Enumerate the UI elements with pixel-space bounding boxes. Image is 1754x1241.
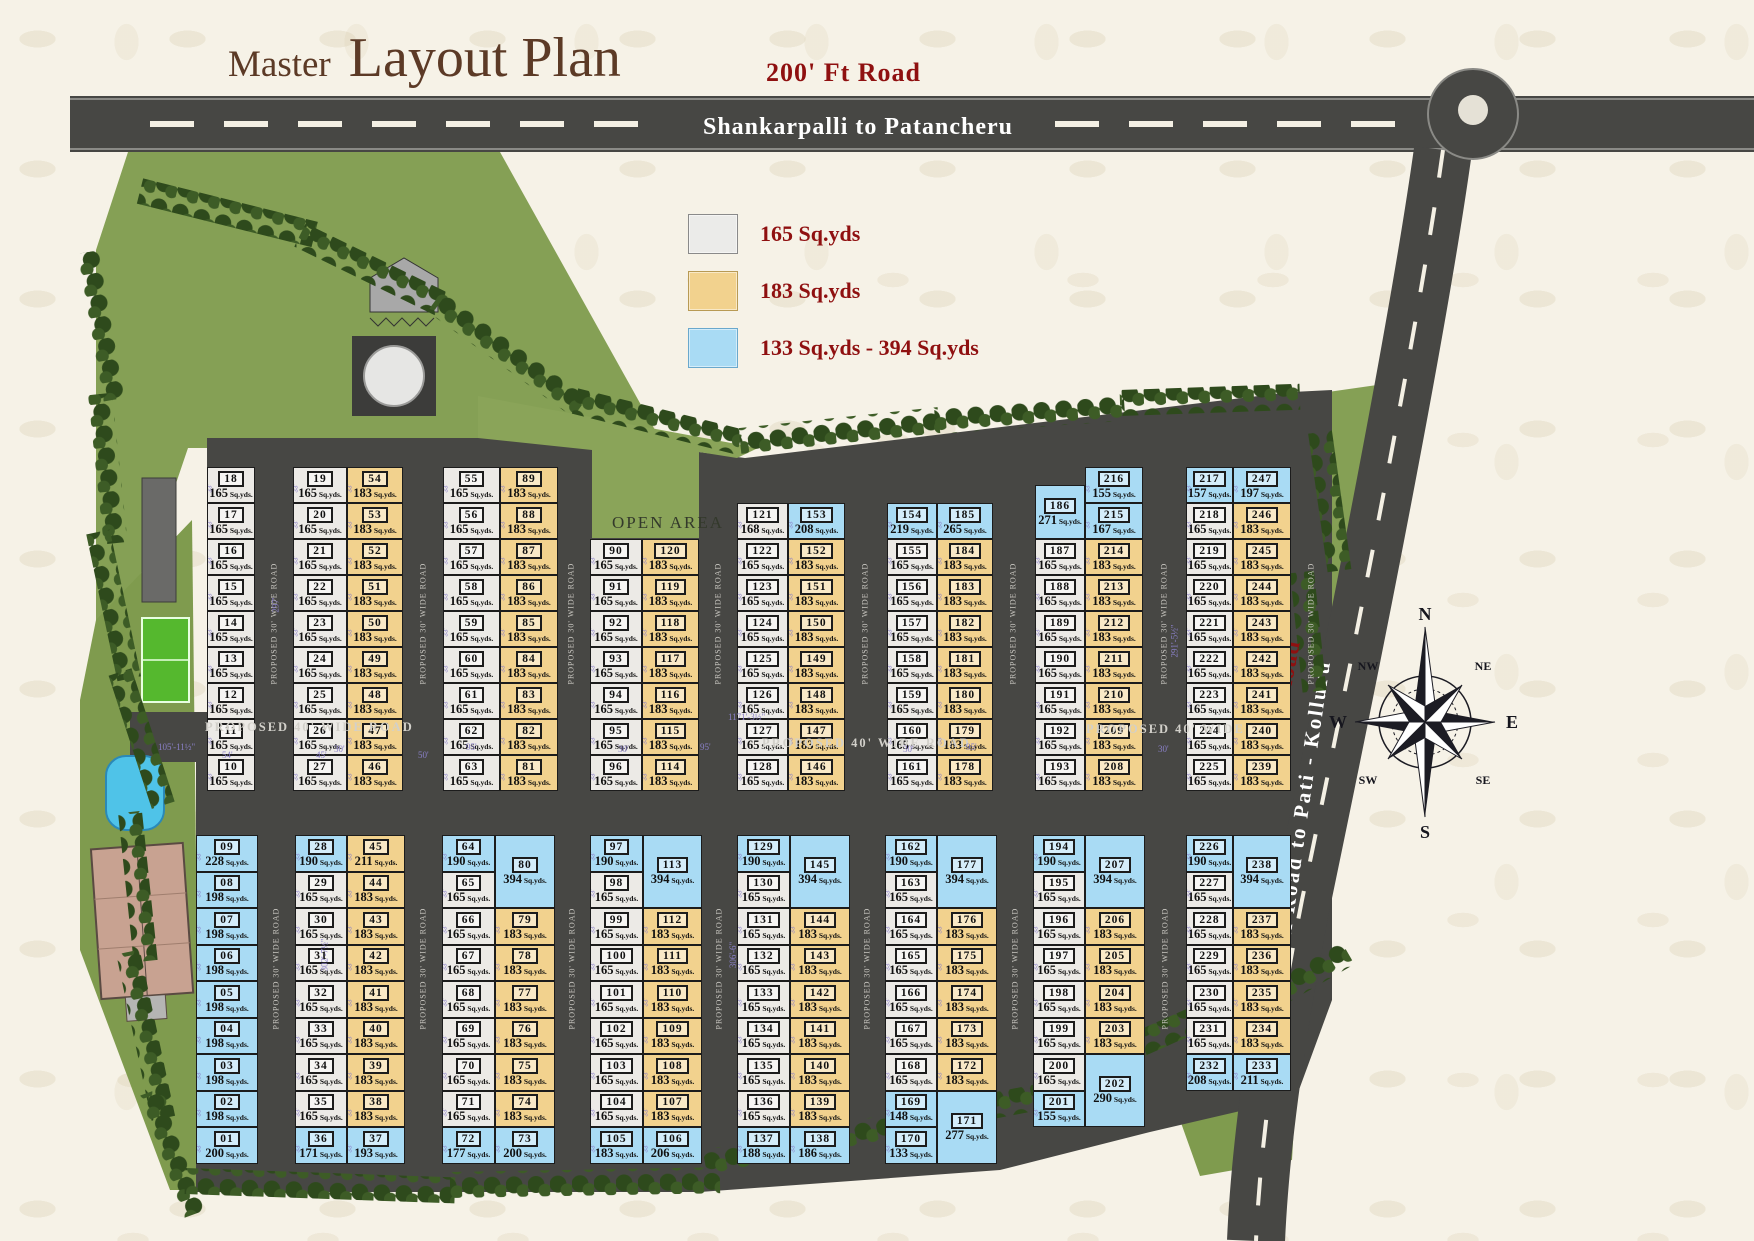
plot-82[interactable]: 82183 Sq.yds.33': [500, 719, 558, 755]
plot-number: 180: [949, 687, 981, 703]
plot-number: 94: [603, 687, 629, 703]
plot-108[interactable]: 108183 Sq.yds.33': [643, 1054, 702, 1091]
plot-28[interactable]: 28190 Sq.yds.33': [295, 835, 347, 872]
plot-depth-dim: 33': [295, 1035, 302, 1043]
plot-98[interactable]: 98165 Sq.yds.33': [590, 872, 643, 909]
plot-09[interactable]: 09228 Sq.yds.33': [196, 835, 258, 872]
plot-13[interactable]: 13165 Sq.yds.33': [207, 647, 255, 683]
plot-93[interactable]: 93165 Sq.yds.33': [590, 647, 642, 683]
plot-180[interactable]: 180183 Sq.yds.33': [937, 683, 993, 719]
plot-depth-dim: 33': [1233, 962, 1240, 970]
plot-44[interactable]: 44183 Sq.yds.33': [347, 872, 405, 909]
plot-130[interactable]: 130165 Sq.yds.33': [737, 872, 790, 909]
plot-size: 183 Sq.yds.: [651, 965, 695, 977]
plot-124[interactable]: 124165 Sq.yds.33': [737, 611, 788, 647]
plot-149[interactable]: 149183 Sq.yds.33': [788, 647, 845, 683]
plot-91[interactable]: 91165 Sq.yds.33': [590, 575, 642, 611]
plot-143[interactable]: 143183 Sq.yds.33': [790, 945, 850, 982]
plot-247[interactable]: 247197 Sq.yds.33': [1233, 467, 1291, 503]
plot-232[interactable]: 232208 Sq.yds.33': [1186, 1054, 1233, 1091]
plot-210[interactable]: 210183 Sq.yds.33': [1085, 683, 1143, 719]
plot-123[interactable]: 123165 Sq.yds.33': [737, 575, 788, 611]
plot-191[interactable]: 191165 Sq.yds.33': [1035, 683, 1085, 719]
plot-113[interactable]: 113394 Sq.yds.: [643, 835, 702, 908]
plot-22[interactable]: 22165 Sq.yds.33': [293, 575, 347, 611]
plot-33[interactable]: 33165 Sq.yds.33': [295, 1018, 347, 1055]
plot-136[interactable]: 136165 Sq.yds.33': [737, 1091, 790, 1128]
plot-06[interactable]: 06198 Sq.yds.33': [196, 945, 258, 982]
plot-171[interactable]: 171277 Sq.yds.: [937, 1091, 997, 1164]
plot-140[interactable]: 140183 Sq.yds.33': [790, 1054, 850, 1091]
plot-50[interactable]: 50183 Sq.yds.33': [347, 611, 403, 647]
plot-216[interactable]: 216155 Sq.yds.33': [1085, 467, 1143, 503]
plot-77[interactable]: 77183 Sq.yds.33': [495, 981, 555, 1018]
plot-114[interactable]: 114183 Sq.yds.33': [642, 755, 699, 791]
plot-depth-dim: 33': [737, 889, 744, 897]
plot-size: 183 Sq.yds.: [945, 1075, 989, 1087]
plot-32[interactable]: 32165 Sq.yds.33': [295, 981, 347, 1018]
plot-214[interactable]: 214183 Sq.yds.33': [1085, 539, 1143, 575]
plot-number: 217: [1193, 471, 1225, 487]
plot-depth-dim: 33': [1186, 1072, 1193, 1080]
plot-165[interactable]: 165165 Sq.yds.33': [885, 945, 937, 982]
plot-84[interactable]: 84183 Sq.yds.33': [500, 647, 558, 683]
plot-131[interactable]: 131165 Sq.yds.33': [737, 908, 790, 945]
plot-157[interactable]: 157165 Sq.yds.33': [887, 611, 937, 647]
plot-42[interactable]: 42183 Sq.yds.33': [347, 945, 405, 982]
plot-10[interactable]: 10165 Sq.yds.33': [207, 755, 255, 791]
plot-07[interactable]: 07198 Sq.yds.33': [196, 908, 258, 945]
plot-101[interactable]: 101165 Sq.yds.33': [590, 981, 643, 1018]
plot-65[interactable]: 65165 Sq.yds.33': [442, 872, 495, 909]
plot-174[interactable]: 174183 Sq.yds.33': [937, 981, 997, 1018]
plot-95[interactable]: 95165 Sq.yds.33': [590, 719, 642, 755]
plot-17[interactable]: 17165 Sq.yds.33': [207, 503, 255, 539]
plot-142[interactable]: 142183 Sq.yds.33': [790, 981, 850, 1018]
plot-244[interactable]: 244183 Sq.yds.33': [1233, 575, 1291, 611]
plot-146[interactable]: 146183 Sq.yds.33': [788, 755, 845, 791]
plot-230[interactable]: 230165 Sq.yds.33': [1186, 981, 1233, 1018]
plot-188[interactable]: 188165 Sq.yds.33': [1035, 575, 1085, 611]
plot-176[interactable]: 176183 Sq.yds.33': [937, 908, 997, 945]
plot-37[interactable]: 37193 Sq.yds.33': [347, 1127, 405, 1164]
plot-number: 14: [218, 615, 244, 631]
plot-depth-dim: 33': [442, 853, 449, 861]
plot-229[interactable]: 229165 Sq.yds.33': [1186, 945, 1233, 982]
plot-size: 183 Sq.yds.: [649, 776, 693, 788]
plot-number: 215: [1098, 507, 1130, 523]
plot-number: 90: [603, 543, 629, 559]
plot-211[interactable]: 211183 Sq.yds.33': [1085, 647, 1143, 683]
plot-size: 183 Sq.yds.: [651, 1002, 695, 1014]
plot-189[interactable]: 189165 Sq.yds.33': [1035, 611, 1085, 647]
plot-number: 187: [1044, 543, 1076, 559]
plot-02[interactable]: 02198 Sq.yds.33': [196, 1091, 258, 1128]
plot-182[interactable]: 182183 Sq.yds.33': [937, 611, 993, 647]
plot-106[interactable]: 106206 Sq.yds.33': [643, 1127, 702, 1164]
plot-99[interactable]: 99165 Sq.yds.33': [590, 908, 643, 945]
plot-15[interactable]: 15165 Sq.yds.33': [207, 575, 255, 611]
plot-170[interactable]: 170133 Sq.yds.33': [885, 1127, 937, 1164]
plot-185[interactable]: 185265 Sq.yds.33': [937, 503, 993, 539]
plot-118[interactable]: 118183 Sq.yds.33': [642, 611, 699, 647]
plot-177[interactable]: 177394 Sq.yds.: [937, 835, 997, 908]
plot-194[interactable]: 194190 Sq.yds.33': [1033, 835, 1085, 872]
plot-number: 38: [363, 1094, 389, 1110]
plot-number: 46: [362, 759, 388, 775]
plot-40[interactable]: 40183 Sq.yds.33': [347, 1018, 405, 1055]
plot-size: 183 Sq.yds.: [503, 1002, 547, 1014]
plot-49[interactable]: 49183 Sq.yds.33': [347, 647, 403, 683]
plot-135[interactable]: 135165 Sq.yds.33': [737, 1054, 790, 1091]
plot-212[interactable]: 212183 Sq.yds.33': [1085, 611, 1143, 647]
plot-60[interactable]: 60165 Sq.yds.33': [443, 647, 500, 683]
plot-204[interactable]: 204183 Sq.yds.33': [1085, 981, 1145, 1018]
plot-67[interactable]: 67165 Sq.yds.33': [442, 945, 495, 982]
plot-128[interactable]: 128165 Sq.yds.33': [737, 755, 788, 791]
plot-122[interactable]: 122165 Sq.yds.33': [737, 539, 788, 575]
plot-154[interactable]: 154219 Sq.yds.33': [887, 503, 937, 539]
plot-number: 197: [1043, 948, 1075, 964]
plot-59[interactable]: 59165 Sq.yds.33': [443, 611, 500, 647]
plot-109[interactable]: 109183 Sq.yds.33': [643, 1018, 702, 1055]
plot-43[interactable]: 43183 Sq.yds.33': [347, 908, 405, 945]
plot-187[interactable]: 187165 Sq.yds.33': [1035, 539, 1085, 575]
plot-241[interactable]: 241183 Sq.yds.33': [1233, 683, 1291, 719]
plot-29[interactable]: 29165 Sq.yds.33': [295, 872, 347, 909]
plot-45[interactable]: 45211 Sq.yds.33': [347, 835, 405, 872]
plot-163[interactable]: 163165 Sq.yds.33': [885, 872, 937, 909]
plot-175[interactable]: 175183 Sq.yds.33': [937, 945, 997, 982]
plot-132[interactable]: 132165 Sq.yds.33': [737, 945, 790, 982]
plot-116[interactable]: 116183 Sq.yds.33': [642, 683, 699, 719]
plot-192[interactable]: 192165 Sq.yds.33': [1035, 719, 1085, 755]
plot-58[interactable]: 58165 Sq.yds.33': [443, 575, 500, 611]
plot-number: 125: [746, 651, 778, 667]
plot-size: 183 Sq.yds.: [503, 965, 547, 977]
plot-number: 168: [895, 1058, 927, 1074]
plot-198[interactable]: 198165 Sq.yds.33': [1033, 981, 1085, 1018]
plot-206[interactable]: 206183 Sq.yds.33': [1085, 908, 1145, 945]
plot-107[interactable]: 107183 Sq.yds.33': [643, 1091, 702, 1128]
plot-161[interactable]: 161165 Sq.yds.33': [887, 755, 937, 791]
plot-92[interactable]: 92165 Sq.yds.33': [590, 611, 642, 647]
plot-87[interactable]: 87183 Sq.yds.33': [500, 539, 558, 575]
plot-96[interactable]: 96165 Sq.yds.33': [590, 755, 642, 791]
plot-depth-dim: 33': [887, 556, 894, 564]
plot-41[interactable]: 41183 Sq.yds.33': [347, 981, 405, 1018]
plot-20[interactable]: 20165 Sq.yds.33': [293, 503, 347, 539]
plot-51[interactable]: 51183 Sq.yds.33': [347, 575, 403, 611]
plot-228[interactable]: 228165 Sq.yds.33': [1186, 908, 1233, 945]
plot-164[interactable]: 164165 Sq.yds.33': [885, 908, 937, 945]
plot-08[interactable]: 08198 Sq.yds.33': [196, 872, 258, 909]
plot-63[interactable]: 63165 Sq.yds.33': [443, 755, 500, 791]
plot-196[interactable]: 196165 Sq.yds.33': [1033, 908, 1085, 945]
plot-04[interactable]: 04198 Sq.yds.33': [196, 1018, 258, 1055]
plot-size: 165 Sq.yds.: [1037, 892, 1081, 904]
plot-97[interactable]: 97190 Sq.yds.33': [590, 835, 643, 872]
plot-56[interactable]: 56165 Sq.yds.33': [443, 503, 500, 539]
plot-81[interactable]: 81183 Sq.yds.33': [500, 755, 558, 791]
plot-24[interactable]: 24165 Sq.yds.33': [293, 647, 347, 683]
plot-depth-dim: 33': [885, 1145, 892, 1153]
plot-25[interactable]: 25165 Sq.yds.33': [293, 683, 347, 719]
plot-150[interactable]: 150183 Sq.yds.33': [788, 611, 845, 647]
plot-53[interactable]: 53183 Sq.yds.33': [347, 503, 403, 539]
plot-size: 183 Sq.yds.: [651, 929, 695, 941]
plot-169[interactable]: 169148 Sq.yds.33': [885, 1091, 937, 1128]
plot-size: 177 Sq.yds.: [447, 1148, 491, 1160]
plot-205[interactable]: 205183 Sq.yds.33': [1085, 945, 1145, 982]
plot-195[interactable]: 195165 Sq.yds.33': [1033, 872, 1085, 909]
plot-88[interactable]: 88183 Sq.yds.33': [500, 503, 558, 539]
plot-size: 277 Sq.yds.: [945, 1130, 989, 1142]
plot-38[interactable]: 38183 Sq.yds.33': [347, 1091, 405, 1128]
plot-233[interactable]: 233211 Sq.yds.33': [1233, 1054, 1291, 1091]
plot-105[interactable]: 105183 Sq.yds.33': [590, 1127, 643, 1164]
plot-21[interactable]: 21165 Sq.yds.33': [293, 539, 347, 575]
plot-depth-dim: 33': [1186, 556, 1193, 564]
plot-208[interactable]: 208183 Sq.yds.33': [1085, 755, 1143, 791]
plot-size: 193 Sq.yds.: [354, 1148, 398, 1160]
plot-number: 116: [655, 687, 687, 703]
plot-215[interactable]: 215167 Sq.yds.33': [1085, 503, 1143, 539]
plot-153[interactable]: 153208 Sq.yds.33': [788, 503, 845, 539]
plot-number: 178: [949, 759, 981, 775]
plot-depth-dim: 33': [347, 853, 354, 861]
plot-86[interactable]: 86183 Sq.yds.33': [500, 575, 558, 611]
plot-242[interactable]: 242183 Sq.yds.33': [1233, 647, 1291, 683]
plot-103[interactable]: 103165 Sq.yds.33': [590, 1054, 643, 1091]
plot-167[interactable]: 167165 Sq.yds.33': [885, 1018, 937, 1055]
plot-16[interactable]: 16165 Sq.yds.33': [207, 539, 255, 575]
plot-depth-dim: 33': [937, 772, 944, 780]
plot-203[interactable]: 203183 Sq.yds.33': [1085, 1018, 1145, 1055]
plot-61[interactable]: 61165 Sq.yds.33': [443, 683, 500, 719]
plot-245[interactable]: 245183 Sq.yds.33': [1233, 539, 1291, 575]
plot-number: 216: [1098, 471, 1130, 487]
plot-80[interactable]: 80394 Sq.yds.: [495, 835, 555, 908]
plot-71[interactable]: 71165 Sq.yds.33': [442, 1091, 495, 1128]
plot-112[interactable]: 112183 Sq.yds.33': [643, 908, 702, 945]
plot-79[interactable]: 79183 Sq.yds.33': [495, 908, 555, 945]
plot-190[interactable]: 190165 Sq.yds.33': [1035, 647, 1085, 683]
plot-220[interactable]: 220165 Sq.yds.33': [1186, 575, 1233, 611]
plot-134[interactable]: 134165 Sq.yds.33': [737, 1018, 790, 1055]
plot-102[interactable]: 102165 Sq.yds.33': [590, 1018, 643, 1055]
plot-69[interactable]: 69165 Sq.yds.33': [442, 1018, 495, 1055]
plot-73[interactable]: 73200 Sq.yds.33': [495, 1127, 555, 1164]
plot-size: 183 Sq.yds.: [1240, 1038, 1284, 1050]
plot-depth-dim: 33': [347, 628, 354, 636]
plot-119[interactable]: 119183 Sq.yds.33': [642, 575, 699, 611]
plot-number: 45: [363, 839, 389, 855]
plot-178[interactable]: 178183 Sq.yds.33': [937, 755, 993, 791]
plot-139[interactable]: 139183 Sq.yds.33': [790, 1091, 850, 1128]
plot-235[interactable]: 235183 Sq.yds.33': [1233, 981, 1291, 1018]
plot-129[interactable]: 129190 Sq.yds.33': [737, 835, 790, 872]
plot-94[interactable]: 94165 Sq.yds.33': [590, 683, 642, 719]
plot-159[interactable]: 159165 Sq.yds.33': [887, 683, 937, 719]
plot-36[interactable]: 36171 Sq.yds.33': [295, 1127, 347, 1164]
plot-115[interactable]: 115183 Sq.yds.33': [642, 719, 699, 755]
plot-222[interactable]: 222165 Sq.yds.33': [1186, 647, 1233, 683]
plot-depth-dim: 33': [643, 962, 650, 970]
plot-depth-dim: 33': [1033, 889, 1040, 897]
plot-137[interactable]: 137188 Sq.yds.33': [737, 1127, 790, 1164]
plot-number: 35: [308, 1094, 334, 1110]
plot-237[interactable]: 237183 Sq.yds.33': [1233, 908, 1291, 945]
plot-90[interactable]: 90165 Sq.yds.33': [590, 539, 642, 575]
plot-78[interactable]: 78183 Sq.yds.33': [495, 945, 555, 982]
plot-68[interactable]: 68165 Sq.yds.33': [442, 981, 495, 1018]
plot-145[interactable]: 145394 Sq.yds.: [790, 835, 850, 908]
plot-183[interactable]: 183183 Sq.yds.33': [937, 575, 993, 611]
plot-34[interactable]: 34165 Sq.yds.33': [295, 1054, 347, 1091]
plot-172[interactable]: 172183 Sq.yds.33': [937, 1054, 997, 1091]
plot-207[interactable]: 207394 Sq.yds.: [1085, 835, 1145, 908]
plot-35[interactable]: 35165 Sq.yds.33': [295, 1091, 347, 1128]
plot-158[interactable]: 158165 Sq.yds.33': [887, 647, 937, 683]
plot-size: 183 Sq.yds.: [795, 668, 839, 680]
plot-75[interactable]: 75183 Sq.yds.33': [495, 1054, 555, 1091]
plot-221[interactable]: 221165 Sq.yds.33': [1186, 611, 1233, 647]
plot-213[interactable]: 213183 Sq.yds.33': [1085, 575, 1143, 611]
plot-138[interactable]: 138186 Sq.yds.33': [790, 1127, 850, 1164]
plot-66[interactable]: 66165 Sq.yds.33': [442, 908, 495, 945]
plot-201[interactable]: 201155 Sq.yds.33': [1033, 1091, 1085, 1128]
plot-depth-dim: 33': [1085, 1035, 1092, 1043]
plot-size: 183 Sq.yds.: [354, 892, 398, 904]
plot-243[interactable]: 243183 Sq.yds.33': [1233, 611, 1291, 647]
plot-74[interactable]: 74183 Sq.yds.33': [495, 1091, 555, 1128]
plot-152[interactable]: 152183 Sq.yds.33': [788, 539, 845, 575]
plot-239[interactable]: 239183 Sq.yds.33': [1233, 755, 1291, 791]
plot-54[interactable]: 54183 Sq.yds.33': [347, 467, 403, 503]
plot-219[interactable]: 219165 Sq.yds.33': [1186, 539, 1233, 575]
plot-size: 165 Sq.yds.: [1188, 704, 1232, 716]
plot-104[interactable]: 104165 Sq.yds.33': [590, 1091, 643, 1128]
plot-number: 88: [516, 507, 542, 523]
plot-141[interactable]: 141183 Sq.yds.33': [790, 1018, 850, 1055]
plot-226[interactable]: 226190 Sq.yds.33': [1186, 835, 1233, 872]
plot-39[interactable]: 39183 Sq.yds.33': [347, 1054, 405, 1091]
plot-200[interactable]: 200165 Sq.yds.33': [1033, 1054, 1085, 1091]
plot-number: 230: [1193, 985, 1225, 1001]
plot-number: 56: [459, 507, 485, 523]
plot-125[interactable]: 125165 Sq.yds.33': [737, 647, 788, 683]
plot-depth-dim: 33': [1085, 772, 1092, 780]
plot-100[interactable]: 100165 Sq.yds.33': [590, 945, 643, 982]
plot-148[interactable]: 148183 Sq.yds.33': [788, 683, 845, 719]
plot-64[interactable]: 64190 Sq.yds.33': [442, 835, 495, 872]
plot-151[interactable]: 151183 Sq.yds.33': [788, 575, 845, 611]
plot-27[interactable]: 27165 Sq.yds.33': [293, 755, 347, 791]
plot-218[interactable]: 218165 Sq.yds.33': [1186, 503, 1233, 539]
plot-number: 148: [800, 687, 832, 703]
plot-48[interactable]: 48183 Sq.yds.33': [347, 683, 403, 719]
plot-number: 19: [307, 471, 333, 487]
plot-12[interactable]: 12165 Sq.yds.33': [207, 683, 255, 719]
plot-181[interactable]: 181183 Sq.yds.33': [937, 647, 993, 683]
plot-144[interactable]: 144183 Sq.yds.33': [790, 908, 850, 945]
plot-117[interactable]: 117183 Sq.yds.33': [642, 647, 699, 683]
plot-76[interactable]: 76183 Sq.yds.33': [495, 1018, 555, 1055]
plot-23[interactable]: 23165 Sq.yds.33': [293, 611, 347, 647]
plot-depth-dim: 33': [1233, 484, 1240, 492]
plot-173[interactable]: 173183 Sq.yds.33': [937, 1018, 997, 1055]
plot-83[interactable]: 83183 Sq.yds.33': [500, 683, 558, 719]
plot-depth-dim: 33': [590, 1108, 597, 1116]
plot-120[interactable]: 120183 Sq.yds.33': [642, 539, 699, 575]
plot-18[interactable]: 18165 Sq.yds.33': [207, 467, 255, 503]
plot-202[interactable]: 202290 Sq.yds.: [1085, 1054, 1145, 1127]
plot-234[interactable]: 234183 Sq.yds.33': [1233, 1018, 1291, 1055]
plot-121[interactable]: 121168 Sq.yds.33': [737, 503, 788, 539]
plot-52[interactable]: 52183 Sq.yds.33': [347, 539, 403, 575]
plot-89[interactable]: 89183 Sq.yds.33': [500, 467, 558, 503]
plot-depth-dim: 33': [642, 556, 649, 564]
plot-111[interactable]: 111183 Sq.yds.33': [643, 945, 702, 982]
plot-number: 54: [362, 471, 388, 487]
plot-72[interactable]: 72177 Sq.yds.33': [442, 1127, 495, 1164]
plot-199[interactable]: 199165 Sq.yds.33': [1033, 1018, 1085, 1055]
plot-01[interactable]: 01200 Sq.yds.33': [196, 1127, 258, 1164]
plot-number: 17: [218, 507, 244, 523]
plot-197[interactable]: 197165 Sq.yds.33': [1033, 945, 1085, 982]
plot-85[interactable]: 85183 Sq.yds.33': [500, 611, 558, 647]
plot-238[interactable]: 238394 Sq.yds.: [1233, 835, 1291, 908]
plot-162[interactable]: 162190 Sq.yds.33': [885, 835, 937, 872]
plot-246[interactable]: 246183 Sq.yds.33': [1233, 503, 1291, 539]
plot-46[interactable]: 46183 Sq.yds.33': [347, 755, 403, 791]
plot-223[interactable]: 223165 Sq.yds.33': [1186, 683, 1233, 719]
plot-133[interactable]: 133165 Sq.yds.33': [737, 981, 790, 1018]
road-label-vertical: PROPOSED 30' WIDE ROAD: [863, 910, 872, 1030]
plot-depth-dim: 33': [788, 592, 795, 600]
plot-227[interactable]: 227165 Sq.yds.33': [1186, 872, 1233, 909]
plot-110[interactable]: 110183 Sq.yds.33': [643, 981, 702, 1018]
plot-57[interactable]: 57165 Sq.yds.33': [443, 539, 500, 575]
plot-depth-dim: 33': [590, 1035, 597, 1043]
plot-156[interactable]: 156165 Sq.yds.33': [887, 575, 937, 611]
plot-155[interactable]: 155165 Sq.yds.33': [887, 539, 937, 575]
plot-size: 183 Sq.yds.: [354, 965, 398, 977]
plot-225[interactable]: 225165 Sq.yds.33': [1186, 755, 1233, 791]
plot-05[interactable]: 05198 Sq.yds.33': [196, 981, 258, 1018]
plot-166[interactable]: 166165 Sq.yds.33': [885, 981, 937, 1018]
plot-186[interactable]: 186271 Sq.yds.: [1035, 485, 1085, 539]
plot-depth-dim: 33': [442, 1145, 449, 1153]
plot-14[interactable]: 14165 Sq.yds.33': [207, 611, 255, 647]
plot-193[interactable]: 193165 Sq.yds.33': [1035, 755, 1085, 791]
plot-19[interactable]: 19165 Sq.yds.33': [293, 467, 347, 503]
plot-number: 151: [800, 579, 832, 595]
plot-168[interactable]: 168165 Sq.yds.33': [885, 1054, 937, 1091]
plot-55[interactable]: 55165 Sq.yds.33': [443, 467, 500, 503]
plot-236[interactable]: 236183 Sq.yds.33': [1233, 945, 1291, 982]
plot-217[interactable]: 217157 Sq.yds.33': [1186, 467, 1233, 503]
plot-number: 41: [363, 985, 389, 1001]
plot-03[interactable]: 03198 Sq.yds.33': [196, 1054, 258, 1091]
plot-number: 110: [657, 985, 689, 1001]
plot-depth-dim: 33': [737, 999, 744, 1007]
plot-depth-dim: 33': [590, 1072, 597, 1080]
plot-70[interactable]: 70165 Sq.yds.33': [442, 1054, 495, 1091]
plot-231[interactable]: 231165 Sq.yds.33': [1186, 1018, 1233, 1055]
plot-184[interactable]: 184183 Sq.yds.33': [937, 539, 993, 575]
